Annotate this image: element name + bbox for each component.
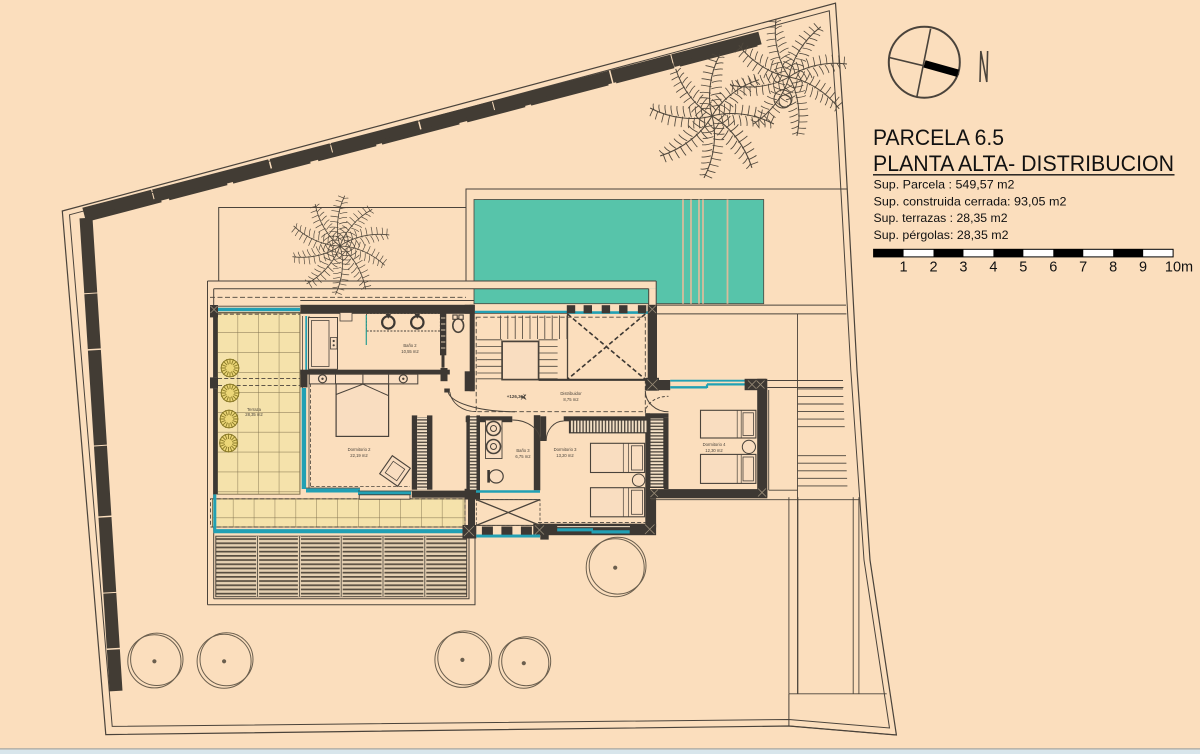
svg-text:Dormitorio 2: Dormitorio 2	[348, 447, 371, 452]
svg-text:Sup. pérgolas: 28,35 m2: Sup. pérgolas: 28,35 m2	[874, 228, 1009, 242]
svg-text:6,75 m2: 6,75 m2	[515, 454, 531, 459]
svg-text:8: 8	[1109, 260, 1117, 276]
svg-text:28,35 m2: 28,35 m2	[245, 412, 263, 417]
svg-text:1: 1	[899, 260, 907, 276]
svg-text:Sup. terrazas : 28,35 m2: Sup. terrazas : 28,35 m2	[874, 211, 1008, 225]
svg-text:9: 9	[1139, 260, 1147, 276]
svg-text:6: 6	[1049, 260, 1057, 276]
svg-text:Sup. construida cerrada: 93,05: Sup. construida cerrada: 93,05 m2	[874, 195, 1067, 209]
svg-text:PARCELA 6.5: PARCELA 6.5	[873, 125, 1004, 150]
svg-text:3: 3	[959, 260, 967, 276]
svg-text:10,55 m2: 10,55 m2	[401, 349, 419, 354]
svg-text:2: 2	[929, 260, 937, 276]
svg-text:8,75 m2: 8,75 m2	[563, 397, 579, 402]
svg-text:Dormitorio 3: Dormitorio 3	[554, 447, 577, 452]
svg-text:13,20 m2: 13,20 m2	[556, 453, 574, 458]
svg-text:22,19 m2: 22,19 m2	[350, 453, 368, 458]
svg-text:12,30 m2: 12,30 m2	[705, 448, 723, 453]
svg-text:4: 4	[989, 260, 997, 276]
svg-text:10m: 10m	[1165, 260, 1193, 276]
svg-text:Sup. Parcela : 549,57 m2: Sup. Parcela : 549,57 m2	[874, 178, 1015, 192]
svg-text:7: 7	[1079, 260, 1087, 276]
svg-text:Baño 3: Baño 3	[516, 448, 530, 453]
svg-text:Dormitorio 4: Dormitorio 4	[703, 442, 726, 447]
svg-text:Baño 2: Baño 2	[403, 343, 417, 348]
svg-text:Distribuidor: Distribuidor	[560, 391, 582, 396]
svg-text:PLANTA ALTA- DISTRIBUCION: PLANTA ALTA- DISTRIBUCION	[873, 151, 1174, 176]
svg-text:5: 5	[1019, 260, 1027, 276]
